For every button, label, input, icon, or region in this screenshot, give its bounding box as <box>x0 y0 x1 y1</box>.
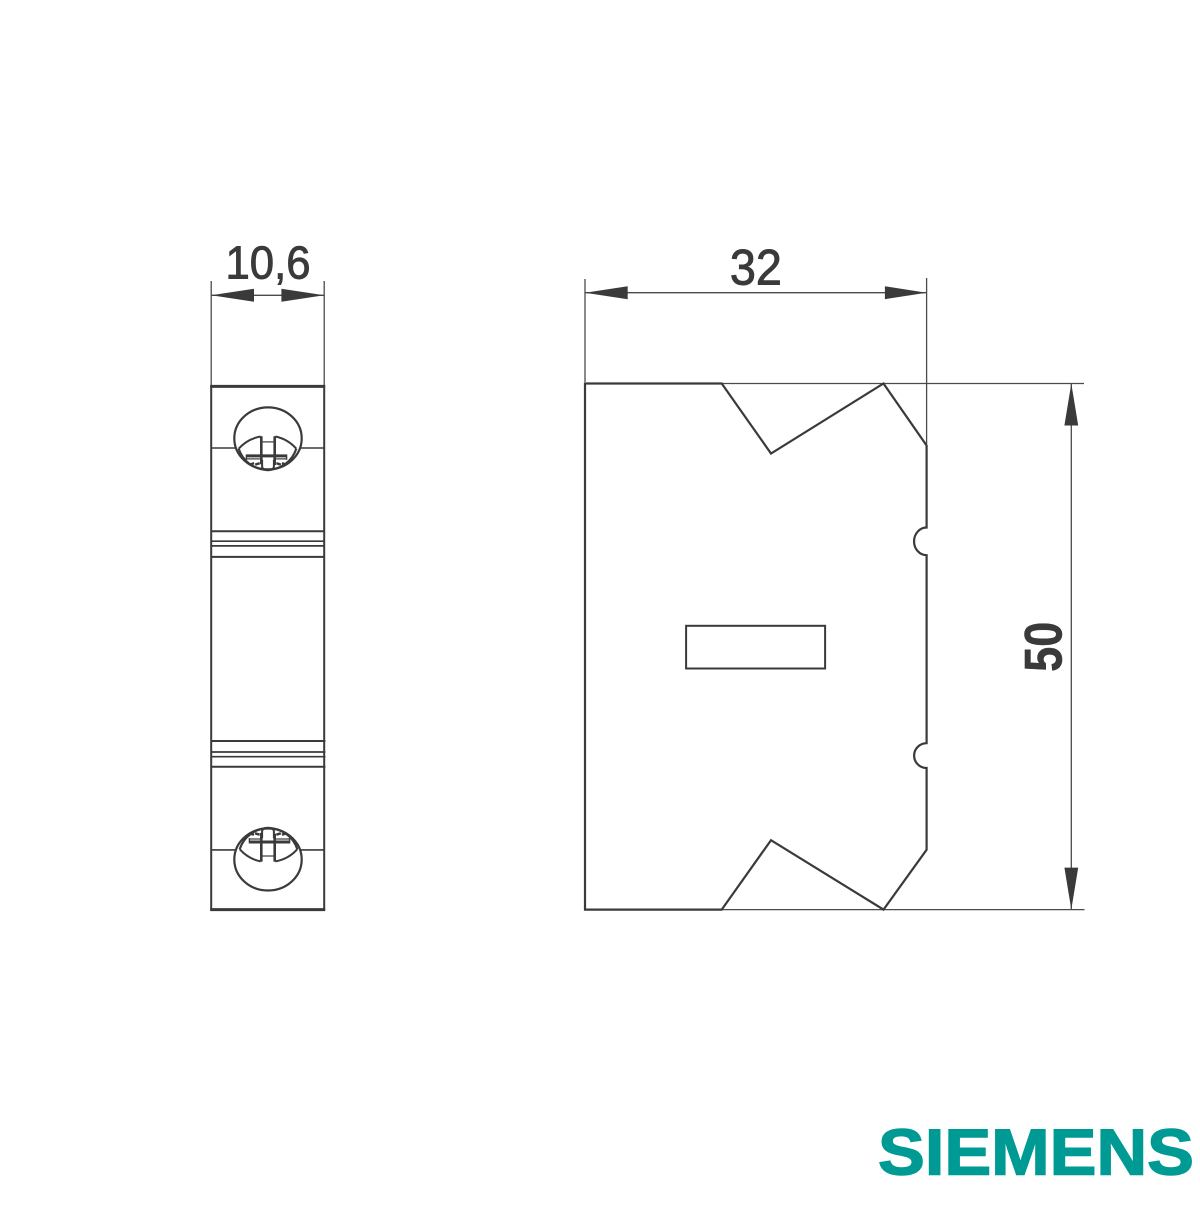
svg-text:10,6: 10,6 <box>226 237 311 289</box>
svg-text:SIEMENS: SIEMENS <box>878 1115 1194 1188</box>
svg-text:32: 32 <box>730 240 782 296</box>
svg-text:50: 50 <box>1015 622 1074 672</box>
